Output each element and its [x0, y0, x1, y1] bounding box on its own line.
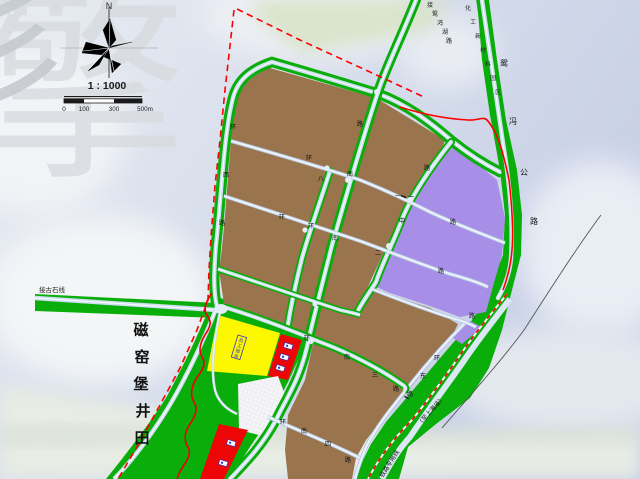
svg-text:路: 路 — [424, 164, 431, 172]
svg-text:南: 南 — [301, 427, 307, 435]
svg-text:路: 路 — [469, 312, 476, 320]
svg-text:环: 环 — [434, 355, 440, 362]
svg-text:公: 公 — [520, 168, 528, 177]
svg-text:接: 接 — [427, 1, 433, 9]
svg-text:100: 100 — [79, 106, 90, 113]
svg-text:东: 东 — [420, 372, 426, 380]
svg-text:磁: 磁 — [133, 321, 148, 339]
svg-text:冯: 冯 — [509, 117, 517, 126]
svg-text:接古石线: 接古石线 — [39, 285, 66, 294]
svg-text:环: 环 — [306, 155, 312, 162]
svg-text:环: 环 — [280, 419, 286, 426]
svg-text:路: 路 — [530, 216, 538, 226]
svg-text:南: 南 — [344, 353, 350, 361]
svg-text:路: 路 — [407, 390, 414, 398]
svg-text:路: 路 — [446, 37, 452, 45]
svg-text:300: 300 — [109, 106, 120, 113]
svg-text:窑: 窑 — [134, 348, 149, 366]
svg-text:鸿: 鸿 — [437, 19, 443, 27]
svg-text:路: 路 — [357, 120, 364, 128]
svg-text:化: 化 — [465, 4, 471, 12]
svg-text:三: 三 — [372, 372, 378, 379]
svg-text:材: 材 — [480, 46, 486, 54]
svg-text:湖: 湖 — [442, 28, 448, 36]
svg-text:环: 环 — [304, 335, 310, 342]
svg-text:井: 井 — [135, 402, 150, 420]
svg-text:新: 新 — [475, 32, 481, 40]
svg-text:西: 西 — [223, 172, 229, 179]
svg-text:四: 四 — [325, 441, 331, 448]
svg-text:500m: 500m — [137, 106, 153, 113]
svg-text:路: 路 — [219, 219, 226, 227]
svg-text:N: N — [106, 1, 113, 11]
svg-text:南: 南 — [347, 170, 353, 178]
svg-text:路: 路 — [438, 267, 445, 275]
svg-text:环: 环 — [279, 214, 285, 221]
svg-text:路: 路 — [393, 385, 400, 393]
svg-text:0: 0 — [62, 106, 66, 113]
svg-text:鸳: 鸳 — [500, 58, 508, 68]
svg-text:中: 中 — [399, 217, 405, 225]
svg-text:园: 园 — [490, 75, 496, 82]
svg-text:一: 一 — [395, 193, 401, 200]
svg-text:一: 一 — [408, 194, 414, 201]
svg-text:田: 田 — [134, 430, 149, 447]
svg-text:区: 区 — [495, 89, 501, 96]
svg-text:堡: 堡 — [133, 375, 148, 393]
svg-text:南: 南 — [332, 234, 338, 242]
svg-text:八: 八 — [318, 176, 325, 183]
svg-text:料: 料 — [485, 60, 491, 68]
svg-text:路: 路 — [450, 218, 457, 226]
svg-text:工: 工 — [470, 19, 476, 26]
svg-text:环: 环 — [230, 124, 236, 131]
svg-text:路: 路 — [345, 456, 352, 464]
svg-text:二: 二 — [375, 250, 381, 257]
svg-text:1 : 1000: 1 : 1000 — [88, 80, 127, 92]
svg-text:鸳: 鸳 — [432, 10, 438, 18]
svg-text:环: 环 — [308, 223, 314, 230]
